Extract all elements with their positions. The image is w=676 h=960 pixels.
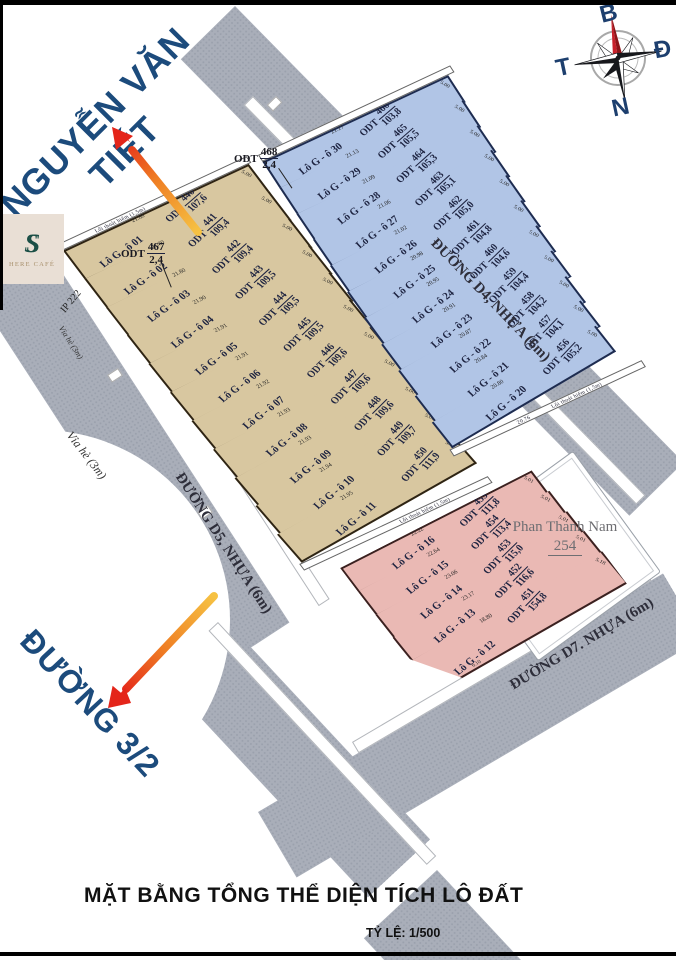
plot-width-label: 5.00 <box>322 277 334 286</box>
plot-width-label: 5.00 <box>498 179 510 189</box>
plot-width-label: 5.00 <box>260 195 272 205</box>
frame-left <box>0 0 3 310</box>
plot-width-label: 5.00 <box>439 80 451 90</box>
plot-width-label: 5.00 <box>342 304 354 313</box>
plot-length-label: 22.22 <box>409 526 425 537</box>
plot-width-label: 5.00 <box>453 103 465 113</box>
scale-label: TỶ LỆ: 1/500 <box>366 926 440 940</box>
compass-east-label: Đ <box>652 35 674 66</box>
plot-width-label: 5.00 <box>513 204 525 214</box>
odt-467-label: ODT 4672,4 <box>121 241 165 266</box>
plot-width-label: 5.00 <box>587 330 599 339</box>
odt-468-label: ODT 4682,4 <box>234 146 278 171</box>
plot-width-label: 5.18 <box>594 557 606 566</box>
frame-bottom <box>0 952 676 956</box>
plot-width-label: 5.00 <box>483 154 495 164</box>
phan-thanh-nam-label: Phan Thanh Nam 254 <box>505 519 625 556</box>
plot-width-label: 5.00 <box>281 222 293 232</box>
plot-width-label: 5.00 <box>468 129 480 139</box>
logo-monogram-icon: SS <box>25 231 40 257</box>
plot-width-label: 5.00 <box>301 250 313 259</box>
plot-width-label: 5.01 <box>523 475 535 485</box>
plot-width-label: 5.01 <box>540 494 552 503</box>
here-cafe-logo: SS HERE CAFÉ <box>0 214 64 284</box>
plot-width-label: 5.00 <box>557 279 569 289</box>
plot-width-label: 5.00 <box>572 305 584 315</box>
site-plan-map: Lối thoát hiểm (1,5m) 21.88 Lô G - ô 01 … <box>0 0 676 960</box>
plot-width-label: 5.00 <box>527 229 539 239</box>
plot-width-label: 5.00 <box>542 254 554 264</box>
frame-top <box>0 0 676 5</box>
page-title: MẶT BẰNG TỔNG THỂ DIỆN TÍCH LÔ ĐẤT <box>84 884 523 908</box>
